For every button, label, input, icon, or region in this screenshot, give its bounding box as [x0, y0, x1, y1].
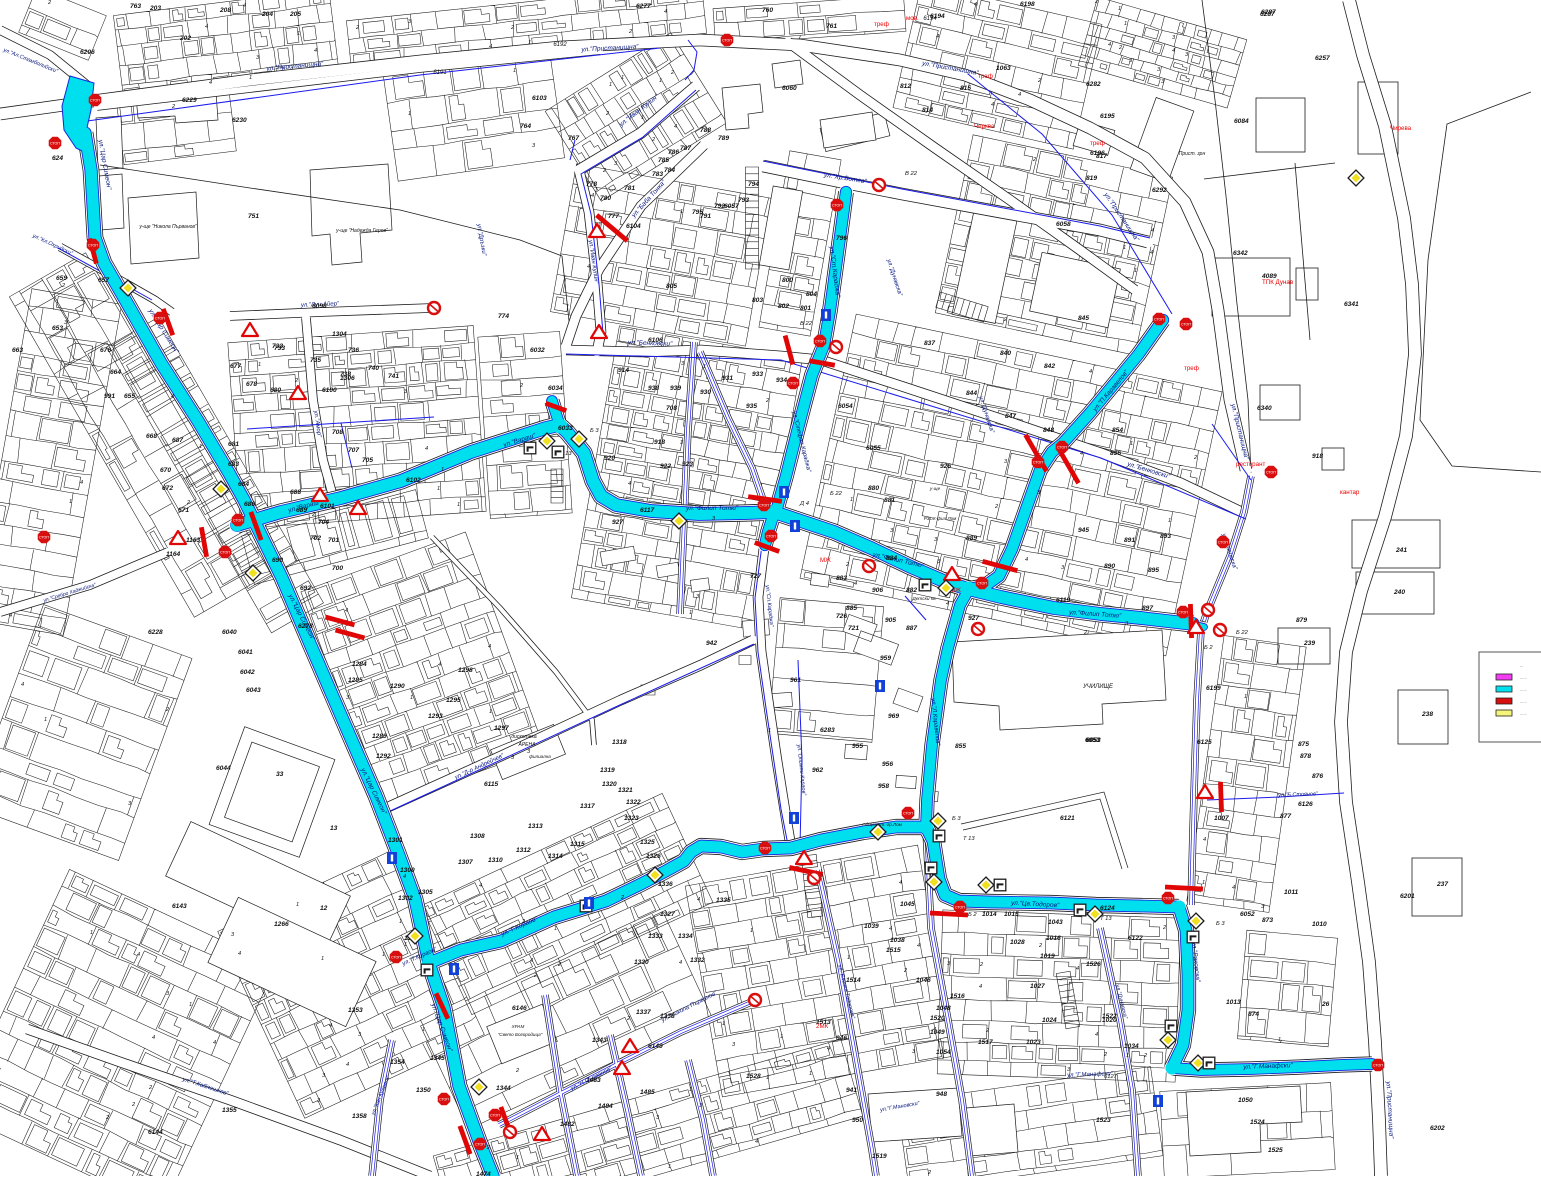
svg-text:882: 882	[906, 587, 917, 594]
svg-text:677: 677	[230, 363, 241, 370]
svg-text:906: 906	[872, 587, 883, 594]
svg-text:1297: 1297	[494, 725, 509, 732]
svg-text:672: 672	[162, 485, 173, 492]
svg-text:Б 3: Б 3	[1216, 921, 1225, 927]
svg-text:4: 4	[1232, 885, 1235, 891]
svg-text:СТОП: СТОП	[475, 1143, 485, 1147]
svg-text:СТОП: СТОП	[903, 812, 913, 816]
svg-text:6124: 6124	[1100, 905, 1115, 912]
svg-text:1318: 1318	[612, 739, 627, 746]
svg-text:1300: 1300	[400, 867, 415, 874]
svg-text:884: 884	[886, 555, 897, 562]
svg-text:1: 1	[437, 486, 440, 492]
svg-text:895: 895	[1148, 567, 1159, 574]
svg-text:......: ......	[1520, 699, 1527, 704]
svg-text:4: 4	[243, 3, 246, 9]
svg-text:1522: 1522	[1102, 1013, 1117, 1020]
svg-text:треф: треф	[1184, 365, 1199, 372]
svg-text:701: 701	[328, 537, 339, 544]
svg-text:803: 803	[752, 297, 763, 304]
svg-text:1: 1	[296, 902, 299, 908]
svg-text:1: 1	[422, 1027, 425, 1033]
svg-text:777: 777	[608, 213, 619, 220]
svg-text:1013: 1013	[1226, 999, 1241, 1006]
svg-text:931: 931	[722, 375, 733, 382]
svg-text:969: 969	[888, 713, 899, 720]
svg-text:784: 784	[664, 167, 675, 174]
svg-text:4: 4	[329, 1023, 332, 1029]
svg-text:653: 653	[52, 325, 63, 332]
svg-text:1: 1	[404, 942, 407, 948]
svg-text:СТОП: СТОП	[788, 382, 798, 386]
svg-text:1523: 1523	[1096, 1117, 1111, 1124]
svg-text:СТОП: СТОП	[155, 317, 165, 321]
svg-text:Д 4: Д 4	[799, 501, 809, 507]
svg-text:26: 26	[1321, 1001, 1330, 1008]
svg-text:кантар: кантар	[1340, 489, 1360, 496]
svg-text:6122: 6122	[1128, 935, 1143, 942]
svg-text:883: 883	[836, 575, 847, 582]
svg-text:4: 4	[946, 601, 949, 607]
svg-text:785: 785	[658, 157, 669, 164]
svg-text:735: 735	[310, 357, 321, 364]
svg-text:1289: 1289	[372, 733, 387, 740]
svg-text:202: 202	[179, 35, 191, 42]
svg-text:у-ще ”Никола Първанов”: у-ще ”Никола Първанов”	[138, 224, 197, 230]
svg-text:780: 780	[600, 195, 611, 202]
svg-text:1304: 1304	[332, 331, 347, 338]
svg-text:4: 4	[591, 193, 594, 199]
svg-text:1306: 1306	[340, 375, 355, 382]
svg-text:Б 3: Б 3	[952, 816, 961, 822]
svg-text:671: 671	[178, 507, 189, 514]
svg-text:СТОП: СТОП	[1181, 323, 1191, 327]
svg-text:1295: 1295	[446, 697, 461, 704]
svg-text:736: 736	[348, 347, 359, 354]
svg-text:1358: 1358	[352, 1113, 367, 1120]
svg-text:941: 941	[846, 1087, 857, 1094]
svg-text:филиална: филиална	[529, 754, 551, 759]
svg-text:6195: 6195	[1100, 113, 1115, 120]
svg-text:СТОП: СТОП	[1057, 446, 1067, 450]
svg-text:6201: 6201	[1400, 893, 1415, 900]
svg-text:4: 4	[974, 2, 977, 8]
svg-text:1046: 1046	[916, 977, 931, 984]
svg-text:4: 4	[1151, 228, 1154, 234]
svg-text:1312: 1312	[516, 847, 531, 854]
svg-text:1028: 1028	[1010, 939, 1025, 946]
svg-text:881: 881	[884, 497, 895, 504]
svg-text:1524: 1524	[1250, 1119, 1265, 1126]
svg-text:663: 663	[12, 347, 23, 354]
svg-text:4: 4	[674, 124, 677, 130]
svg-text:6126: 6126	[1298, 801, 1313, 808]
svg-text:4: 4	[679, 960, 682, 966]
svg-text:4: 4	[979, 984, 982, 990]
svg-text:814: 814	[922, 107, 933, 114]
svg-text:678: 678	[246, 381, 257, 388]
svg-text:1: 1	[1130, 441, 1133, 447]
svg-text:4: 4	[1080, 451, 1083, 457]
svg-text:1310: 1310	[488, 857, 503, 864]
svg-text:1338: 1338	[660, 1013, 675, 1020]
svg-text:6287: 6287	[1260, 11, 1275, 18]
svg-text:4: 4	[1108, 42, 1111, 48]
svg-text:6143: 6143	[172, 903, 187, 910]
svg-text:Б 22: Б 22	[1236, 630, 1249, 636]
svg-text:1010: 1010	[1312, 921, 1327, 928]
svg-text:1315: 1315	[570, 841, 585, 848]
svg-text:668: 668	[146, 433, 157, 440]
svg-text:740: 740	[368, 365, 379, 372]
svg-text:6115: 6115	[484, 781, 499, 788]
svg-text:959: 959	[880, 655, 891, 662]
svg-text:774: 774	[498, 313, 509, 320]
svg-text:1: 1	[847, 955, 850, 961]
svg-text:4: 4	[21, 682, 24, 688]
svg-text:6192: 6192	[553, 42, 567, 48]
svg-text:844: 844	[966, 390, 977, 397]
svg-text:751: 751	[248, 213, 259, 220]
svg-text:1015: 1015	[1004, 911, 1019, 918]
svg-text:1284: 1284	[352, 661, 367, 668]
svg-text:1007: 1007	[1214, 815, 1229, 822]
svg-text:4: 4	[697, 897, 700, 903]
svg-text:1: 1	[199, 444, 202, 450]
svg-text:6277: 6277	[636, 3, 651, 10]
svg-text:1: 1	[609, 82, 612, 88]
svg-text:1343: 1343	[592, 1037, 607, 1044]
svg-text:6340: 6340	[1257, 405, 1272, 412]
svg-text:1333: 1333	[648, 933, 663, 940]
svg-text:6052: 6052	[1240, 911, 1255, 918]
svg-text:Б 2: Б 2	[1204, 645, 1213, 651]
svg-text:СТОП: СТОП	[766, 535, 776, 539]
svg-text:1: 1	[766, 1075, 769, 1081]
svg-text:1: 1	[44, 717, 47, 723]
svg-text:239: 239	[1303, 640, 1315, 647]
svg-text:6033: 6033	[558, 425, 573, 432]
svg-text:12: 12	[320, 905, 328, 912]
svg-text:4: 4	[213, 1040, 216, 1046]
svg-text:889: 889	[966, 535, 977, 542]
svg-text:СТОП: СТОП	[832, 204, 842, 208]
svg-text:6230: 6230	[232, 117, 247, 124]
svg-text:956: 956	[882, 761, 893, 768]
svg-text:700: 700	[332, 565, 343, 572]
svg-text:687: 687	[172, 437, 183, 444]
svg-text:702: 702	[310, 535, 321, 542]
svg-text:1: 1	[668, 1164, 671, 1170]
svg-text:СТОП: СТОП	[1373, 1064, 1383, 1068]
svg-text:905: 905	[885, 617, 896, 624]
svg-text:840: 840	[1000, 350, 1011, 357]
svg-text:4: 4	[209, 80, 212, 86]
svg-text:659: 659	[56, 275, 67, 282]
svg-text:6034: 6034	[548, 385, 563, 392]
svg-text:788: 788	[700, 127, 711, 134]
svg-text:689: 689	[296, 507, 307, 514]
svg-text:6194: 6194	[930, 13, 945, 20]
svg-text:946: 946	[836, 1035, 847, 1042]
svg-text:6101: 6101	[320, 503, 335, 510]
svg-text:1: 1	[489, 709, 492, 715]
svg-text:1: 1	[703, 364, 706, 370]
svg-text:1: 1	[1244, 694, 1247, 700]
svg-text:1: 1	[321, 956, 324, 962]
svg-text:1: 1	[441, 467, 444, 473]
svg-text:6198: 6198	[1020, 1, 1035, 8]
svg-text:6102: 6102	[406, 477, 421, 484]
svg-text:935: 935	[746, 403, 757, 410]
svg-text:1: 1	[621, 75, 624, 81]
svg-text:948: 948	[936, 1091, 947, 1098]
svg-text:МЖ: МЖ	[820, 557, 831, 564]
svg-text:802: 802	[778, 303, 789, 310]
svg-text:927: 927	[968, 615, 979, 622]
svg-text:761: 761	[826, 23, 837, 30]
svg-text:СТОП: СТОП	[815, 340, 825, 344]
svg-text:6043: 6043	[246, 687, 261, 694]
svg-text:Прист. зрн: Прист. зрн	[1179, 151, 1206, 157]
svg-text:4: 4	[755, 1139, 758, 1145]
svg-text:1: 1	[258, 362, 261, 368]
svg-text:мов.: мов.	[906, 15, 919, 22]
svg-text:4: 4	[152, 1035, 155, 1041]
svg-text:837: 837	[924, 340, 935, 347]
svg-text:1: 1	[189, 1002, 192, 1008]
svg-text:СТОП: СТОП	[490, 1114, 500, 1118]
svg-text:1: 1	[1126, 1053, 1129, 1059]
svg-text:СТОП: СТОП	[1163, 897, 1173, 901]
svg-text:787: 787	[680, 145, 691, 152]
svg-text:681: 681	[228, 441, 239, 448]
svg-text:4: 4	[899, 880, 902, 886]
svg-text:1483: 1483	[586, 1077, 601, 1084]
svg-text:СТОП: СТОП	[50, 142, 60, 146]
svg-text:1: 1	[689, 610, 692, 616]
svg-text:6341: 6341	[1344, 301, 1359, 308]
svg-text:1034: 1034	[1124, 1043, 1139, 1050]
svg-text:842: 842	[1044, 363, 1055, 370]
svg-text:1293: 1293	[428, 713, 443, 720]
svg-text:812: 812	[900, 83, 911, 90]
svg-text:804: 804	[806, 291, 817, 298]
svg-text:6103: 6103	[532, 95, 547, 102]
svg-text:796: 796	[836, 235, 847, 242]
svg-text:819: 819	[1086, 175, 1097, 182]
svg-text:721: 721	[848, 625, 859, 632]
svg-text:893: 893	[1160, 533, 1171, 540]
svg-text:6041: 6041	[238, 649, 253, 656]
svg-text:В 22: В 22	[800, 321, 813, 327]
svg-text:ул.”Филип Тотю”: ул.”Филип Тотю”	[685, 505, 739, 512]
svg-text:1355: 1355	[222, 1107, 237, 1114]
svg-text:4: 4	[628, 481, 631, 487]
svg-text:треф: треф	[978, 73, 993, 80]
svg-text:805: 805	[666, 283, 677, 290]
svg-text:4: 4	[80, 480, 83, 486]
svg-text:6121: 6121	[1060, 815, 1075, 822]
svg-text:880: 880	[868, 485, 879, 492]
svg-text:4: 4	[587, 264, 590, 270]
svg-text:781: 781	[624, 185, 635, 192]
svg-text:6202: 6202	[1430, 1125, 1445, 1132]
svg-text:4: 4	[1203, 837, 1206, 843]
svg-text:704: 704	[318, 519, 329, 526]
svg-text:4: 4	[479, 883, 482, 889]
svg-text:914: 914	[618, 367, 629, 374]
svg-text:208: 208	[219, 7, 231, 14]
svg-text:6146: 6146	[512, 1005, 527, 1012]
svg-text:Б 22: Б 22	[830, 491, 843, 497]
svg-text:1063: 1063	[996, 65, 1011, 72]
svg-text:6104: 6104	[626, 223, 641, 230]
svg-text:1354: 1354	[390, 1059, 405, 1066]
svg-text:4: 4	[9, 613, 12, 619]
svg-text:1314: 1314	[548, 853, 563, 860]
svg-text:926: 926	[940, 463, 951, 470]
svg-text:690: 690	[272, 557, 283, 564]
svg-text:1474: 1474	[476, 1171, 491, 1176]
svg-text:6282: 6282	[1086, 81, 1101, 88]
svg-text:...: ...	[1520, 663, 1523, 668]
svg-text:4: 4	[1089, 369, 1092, 375]
svg-text:РЗОК-фил.Лом: РЗОК-фил.Лом	[924, 516, 957, 521]
svg-text:705: 705	[362, 457, 373, 464]
svg-text:4: 4	[488, 644, 491, 650]
svg-text:1: 1	[722, 1021, 725, 1027]
svg-text:1330: 1330	[634, 959, 649, 966]
svg-text:4: 4	[917, 943, 920, 949]
svg-text:6292: 6292	[1152, 187, 1167, 194]
svg-text:6342: 6342	[1233, 250, 1248, 257]
svg-text:891: 891	[1124, 537, 1135, 544]
svg-text:1321: 1321	[618, 787, 633, 794]
svg-text:1515: 1515	[886, 947, 901, 954]
svg-text:847: 847	[1005, 413, 1016, 420]
svg-text:1: 1	[750, 928, 753, 934]
svg-text:1322: 1322	[626, 799, 641, 806]
svg-text:1305: 1305	[418, 889, 433, 896]
svg-text:1: 1	[1124, 21, 1127, 27]
svg-text:4: 4	[1025, 557, 1028, 563]
svg-text:923: 923	[682, 461, 693, 468]
svg-text:СТОП: СТОП	[90, 99, 100, 103]
svg-text:СТОП: СТОП	[955, 906, 965, 910]
svg-text:1: 1	[410, 695, 413, 701]
svg-text:205: 205	[289, 11, 301, 18]
svg-text:4: 4	[425, 446, 428, 452]
svg-text:6199: 6199	[1206, 685, 1221, 692]
svg-text:763: 763	[130, 3, 141, 10]
svg-text:треф: треф	[1090, 140, 1105, 147]
svg-text:930: 930	[700, 389, 711, 396]
svg-text:1011: 1011	[1284, 889, 1299, 896]
svg-text:1: 1	[399, 919, 402, 925]
svg-text:Б 3: Б 3	[590, 428, 599, 434]
svg-text:дискотека: дискотека	[511, 734, 536, 740]
svg-text:885: 885	[846, 605, 857, 612]
svg-text:Общежит.-гр.Лом: Общежит.-гр.Лом	[862, 822, 903, 827]
svg-text:1292: 1292	[376, 753, 391, 760]
svg-text:4: 4	[238, 951, 241, 957]
svg-text:733: 733	[272, 343, 283, 350]
svg-text:783: 783	[652, 171, 663, 178]
svg-text:950: 950	[852, 1117, 863, 1124]
svg-text:СТОП: СТОП	[760, 847, 770, 851]
svg-text:6196: 6196	[1090, 150, 1105, 157]
svg-text:676: 676	[100, 347, 111, 354]
svg-text:33: 33	[276, 771, 284, 778]
svg-text:237: 237	[1436, 881, 1448, 888]
svg-text:707: 707	[348, 447, 359, 454]
svg-text:4: 4	[827, 1046, 830, 1052]
svg-text:815: 815	[960, 85, 971, 92]
svg-text:СТОП: СТОП	[1033, 461, 1043, 465]
svg-text:4: 4	[1095, 1032, 1098, 1038]
svg-text:789: 789	[718, 135, 729, 142]
svg-text:1285: 1285	[348, 677, 363, 684]
svg-text:1484: 1484	[598, 1103, 613, 1110]
svg-text:4: 4	[936, 34, 939, 40]
svg-text:”Свето Богородица”: ”Свето Богородица”	[498, 1032, 543, 1037]
svg-text:6044: 6044	[216, 765, 231, 772]
svg-text:1516: 1516	[950, 993, 965, 1000]
svg-text:845: 845	[1078, 315, 1089, 322]
svg-text:у-ще: у-ще	[929, 486, 941, 491]
svg-text:ТПК Дунав: ТПК Дунав	[1262, 279, 1294, 286]
svg-text:6054: 6054	[838, 403, 853, 410]
svg-text:1049: 1049	[930, 1029, 945, 1036]
svg-text:688: 688	[290, 489, 301, 496]
svg-text:......: ......	[1520, 675, 1527, 680]
svg-text:726: 726	[836, 613, 847, 620]
svg-text:1290: 1290	[390, 683, 405, 690]
svg-text:1: 1	[689, 1087, 692, 1093]
svg-text:4: 4	[530, 958, 533, 964]
svg-text:1: 1	[516, 1155, 519, 1161]
svg-text:760: 760	[762, 7, 773, 14]
svg-text:6098: 6098	[312, 303, 327, 310]
svg-text:СТОП: СТОП	[759, 504, 769, 508]
svg-text:848: 848	[1043, 427, 1054, 434]
svg-text:801: 801	[800, 305, 811, 312]
svg-text:6228: 6228	[148, 629, 163, 636]
svg-text:1526: 1526	[1086, 961, 1101, 968]
svg-text:1334: 1334	[678, 933, 693, 940]
svg-text:6229: 6229	[182, 97, 197, 104]
svg-text:СТОП: СТОП	[722, 39, 732, 43]
svg-text:1: 1	[780, 1034, 783, 1040]
svg-text:1337: 1337	[636, 1009, 651, 1016]
svg-text:6125: 6125	[1197, 739, 1212, 746]
svg-text:4: 4	[991, 102, 994, 108]
svg-text:1323: 1323	[624, 815, 639, 822]
svg-text:793: 793	[738, 197, 749, 204]
svg-text:670: 670	[160, 467, 171, 474]
svg-text:1325: 1325	[640, 839, 655, 846]
svg-text:6055: 6055	[866, 445, 881, 452]
svg-text:1: 1	[513, 68, 516, 74]
svg-text:СТОП: СТОП	[1266, 471, 1276, 475]
svg-text:6191: 6191	[433, 70, 446, 76]
svg-text:4: 4	[137, 952, 140, 958]
svg-text:1353: 1353	[348, 1007, 363, 1014]
svg-text:1: 1	[1168, 518, 1171, 524]
svg-text:СТОП: СТОП	[39, 536, 49, 540]
svg-text:240: 240	[1393, 589, 1405, 596]
